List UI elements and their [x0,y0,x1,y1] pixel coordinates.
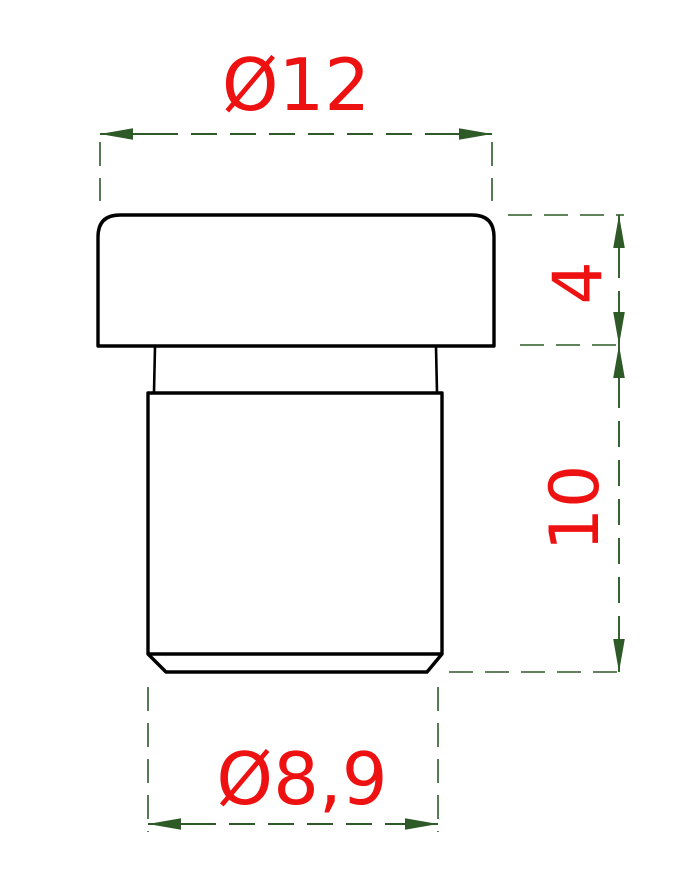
part-body [148,393,442,672]
arrowhead-right [405,818,438,830]
arrowhead-down [613,639,625,672]
arrowhead-right [459,128,492,140]
arrowhead-left [148,818,181,830]
arrowhead-up [613,215,625,248]
part-neck-right-edge [436,347,437,392]
part-head [98,215,494,346]
dimension-label-body-height: 10 [536,465,615,552]
part-neck-left-edge [154,347,155,392]
arrowhead-up [613,345,625,378]
arrowhead-left [100,128,133,140]
arrowhead-down [613,312,625,345]
part-outline [98,215,494,672]
dimension-body-height: 10 [449,345,625,672]
dimension-label-top-diameter: Ø12 [222,43,370,127]
dimension-bottom-diameter: Ø8,9 [148,687,438,832]
dimension-head-height: 4 [508,215,625,345]
dimension-label-head-height: 4 [539,261,618,304]
drawing-page: Ø12 4 10 [0,0,677,879]
technical-drawing-canvas: Ø12 4 10 [0,0,677,879]
dimension-top-diameter: Ø12 [100,43,492,201]
dimension-label-bottom-diameter: Ø8,9 [216,737,387,821]
